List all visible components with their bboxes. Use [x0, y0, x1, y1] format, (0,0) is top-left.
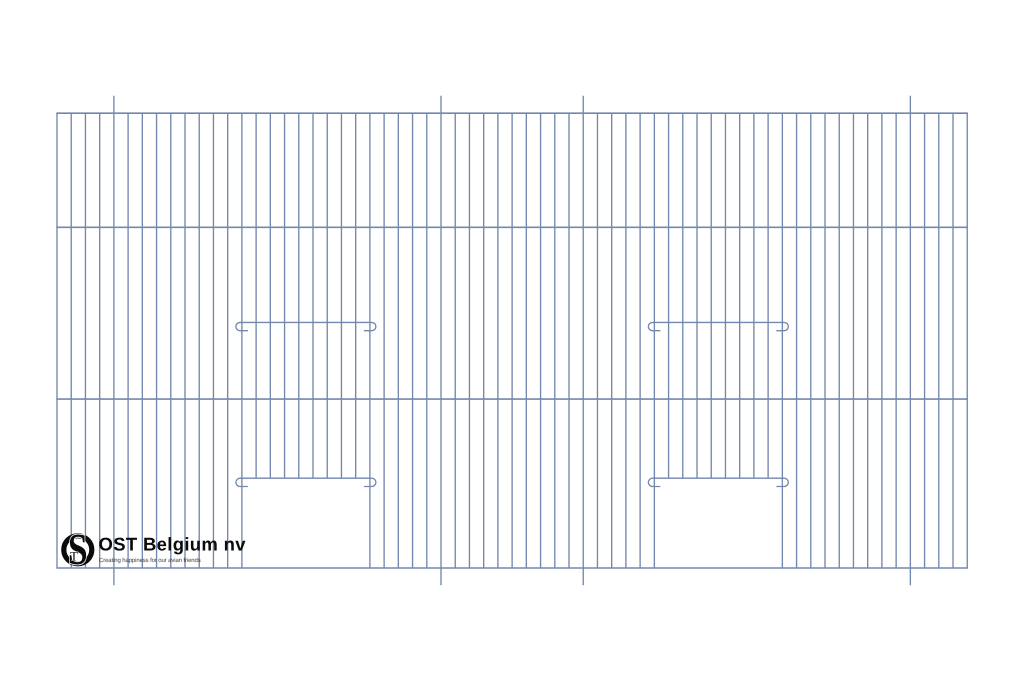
svg-text:T: T	[70, 549, 78, 564]
svg-text:OST Belgium nv: OST Belgium nv	[99, 534, 247, 555]
svg-text:Creating happiness for our avi: Creating happiness for our avian friends	[99, 557, 201, 564]
